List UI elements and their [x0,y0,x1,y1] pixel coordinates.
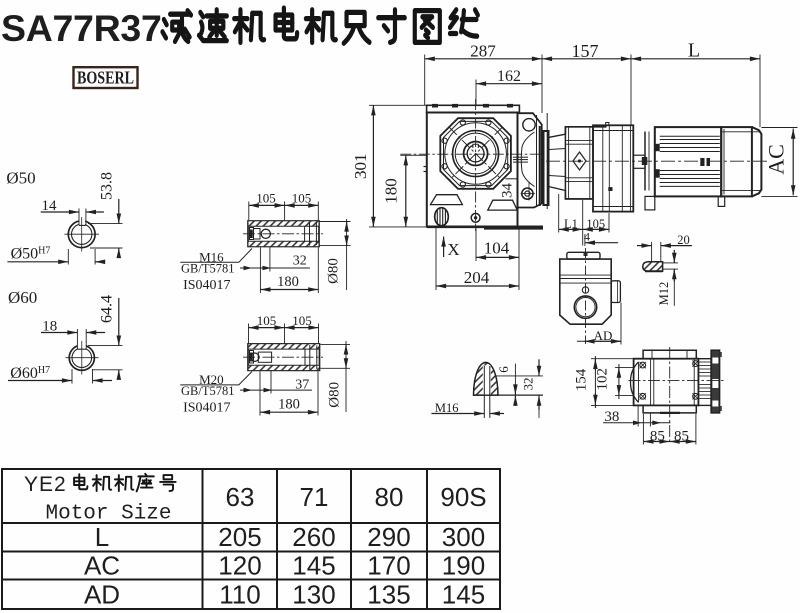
svg-text:204: 204 [464,268,490,287]
svg-text:L1: L1 [564,217,578,231]
svg-text:105: 105 [292,313,312,328]
svg-text:180: 180 [277,274,299,290]
svg-text:120: 120 [218,551,261,581]
svg-text:104: 104 [484,239,510,258]
svg-text:14: 14 [42,198,58,214]
svg-text:157: 157 [572,41,599,61]
svg-text:AD: AD [594,328,613,343]
svg-text:38: 38 [604,409,619,425]
svg-text:Ø60: Ø60 [8,288,37,307]
svg-text:85: 85 [650,428,665,444]
svg-text:18: 18 [42,318,57,334]
svg-text:80: 80 [375,482,404,512]
svg-text:AC: AC [84,551,120,581]
svg-text:145: 145 [292,551,335,581]
svg-text:64.4: 64.4 [99,295,116,323]
svg-text:GB/T5781: GB/T5781 [181,384,234,398]
svg-text:37: 37 [295,378,309,393]
svg-text:IS04017: IS04017 [183,278,230,293]
svg-text:102: 102 [594,368,610,391]
svg-text:105: 105 [257,313,277,328]
svg-text:M12: M12 [657,282,671,306]
svg-text:YE2: YE2 [24,473,67,496]
svg-text:162: 162 [497,68,521,85]
svg-text:Ø50: Ø50 [6,169,35,188]
svg-text:L: L [95,522,109,552]
svg-text:105: 105 [292,191,312,206]
svg-text:110: 110 [219,580,260,610]
svg-text:SA77R37: SA77R37 [1,7,162,49]
svg-text:170: 170 [367,551,410,581]
svg-text:4: 4 [584,230,590,244]
svg-text:130: 130 [292,580,335,610]
svg-text:X: X [447,240,459,259]
svg-text:6: 6 [496,366,511,373]
svg-text:20: 20 [677,233,690,247]
svg-text:M16: M16 [435,401,459,415]
svg-text:Ø80: Ø80 [326,258,342,284]
svg-text:205: 205 [218,522,261,552]
svg-text:190: 190 [442,551,485,581]
svg-text:32: 32 [293,253,307,268]
svg-text:GB/T5781: GB/T5781 [181,261,234,275]
svg-text:53.8: 53.8 [99,172,116,200]
svg-text:300: 300 [442,522,485,552]
svg-text:71: 71 [300,482,329,512]
svg-text:135: 135 [367,580,410,610]
svg-text:32: 32 [521,378,536,391]
svg-text:90S: 90S [440,482,486,512]
svg-text:290: 290 [367,522,410,552]
svg-text:260: 260 [292,522,335,552]
svg-text:63: 63 [226,482,255,512]
svg-text:301: 301 [351,154,370,180]
svg-text:145: 145 [442,580,485,610]
svg-text:AC: AC [764,144,789,175]
svg-text:180: 180 [278,397,300,413]
svg-text:34: 34 [500,183,516,199]
svg-text:Ø80: Ø80 [327,382,343,408]
svg-text:105: 105 [256,191,276,206]
svg-text:BOSERL: BOSERL [77,68,134,88]
svg-text:180: 180 [382,178,401,204]
svg-text:85: 85 [674,428,689,444]
svg-text:154: 154 [574,368,590,391]
svg-text:287: 287 [470,42,496,61]
svg-text:IS04017: IS04017 [183,400,230,415]
svg-text:AD: AD [84,580,120,610]
svg-text:L: L [688,40,700,62]
